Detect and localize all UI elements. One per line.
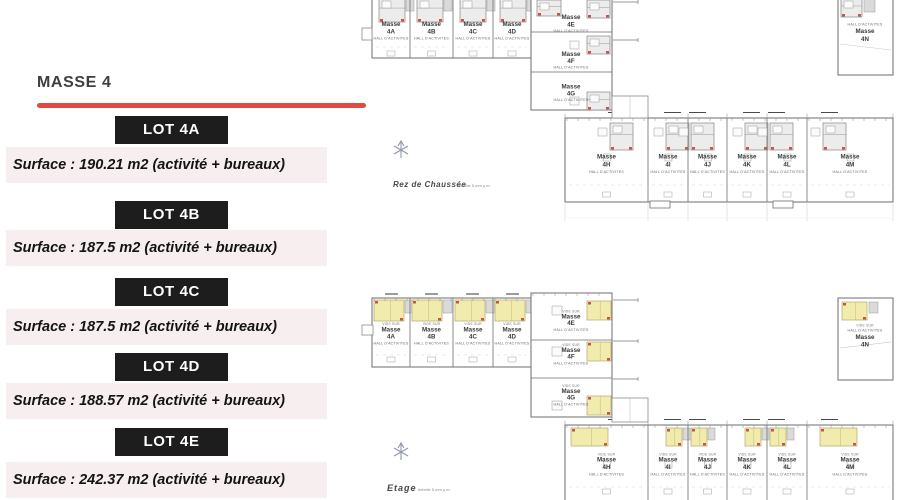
unit-hall-label: HALL D'ACTIVITES: [730, 473, 765, 477]
north-compass-icon: [394, 443, 408, 460]
masse4-sheet: MASSE 4 LOT 4ASurface : 190.21 m2 (activ…: [0, 0, 900, 500]
unit-hall-label: HALL D'ACTIVITES: [414, 342, 449, 346]
unit-number: 4F: [567, 354, 574, 361]
unit-hall-label: HALL D'ACTIVITES: [589, 473, 624, 477]
unit-hall-label: HALL D'ACTIVITES: [554, 403, 589, 407]
plan-label-rdc: Rez de Chaussée: [393, 180, 466, 189]
unit-hall-label: HALL D'ACTIVITES: [690, 170, 725, 174]
plan-label-etage: Etage: [387, 483, 417, 493]
unit-number: 4L: [783, 464, 790, 471]
unit-number: 4D: [508, 334, 516, 341]
unit-name: Masse: [856, 334, 875, 341]
unit-name: Masse: [422, 21, 441, 28]
unit-hall-label: HALL D'ACTIVITES: [495, 37, 530, 41]
unit-void-label: VIDE SUR: [464, 322, 482, 326]
unit-name: Masse: [698, 457, 717, 464]
unit-name: Masse: [464, 327, 483, 334]
floor-plan-etage: VIDE SURMasse4AHALL D'ACTIVITESVIDE SURM…: [362, 293, 893, 500]
floor-plan-rdc: Masse4AHALL D'ACTIVITESMasse4BHALL D'ACT…: [362, 0, 893, 221]
unit-number: 4M: [846, 162, 855, 169]
unit-number: 4C: [469, 29, 477, 36]
unit-hall-label: HALL D'ACTIVITES: [589, 170, 624, 174]
unit-number: 4G: [567, 395, 575, 402]
unit-name: Masse: [562, 84, 581, 91]
unit-hall-label: HALL D'ACTIVITES: [651, 170, 686, 174]
unit-name: Masse: [562, 51, 581, 58]
unit-name: Masse: [382, 327, 401, 334]
unit-number: 4E: [567, 320, 575, 327]
unit-hall-label: HALL D'ACTIVITES: [554, 66, 589, 70]
unit-hall-label: HALL D'ACTIVITES: [554, 29, 589, 33]
unit-name: Masse: [562, 14, 581, 21]
unit-hall-label: HALL D'ACTIVITES: [770, 170, 805, 174]
unit-hall-label: HALL D'ACTIVITES: [770, 473, 805, 477]
unit-number: 4L: [783, 162, 790, 169]
unit-number: 4H: [603, 464, 611, 471]
unit-name: Masse: [382, 21, 401, 28]
unit-name: Masse: [659, 154, 678, 161]
unit-name: Masse: [778, 154, 797, 161]
unit-number: 4A: [387, 29, 395, 36]
unit-void-label: VIDE SUR: [382, 322, 400, 326]
unit-void-label: VIDE SUR: [856, 324, 874, 328]
unit-hall-label: HALL D'ACTIVITES: [833, 170, 868, 174]
unit-number: 4N: [861, 36, 869, 43]
unit-number: 4I: [665, 464, 670, 471]
unit-void-label: VIDE SUR: [503, 322, 521, 326]
unit-number: 4E: [567, 22, 575, 29]
unit-hall-label: HALL D'ACTIVITES: [374, 37, 409, 41]
unit-number: 4I: [665, 162, 670, 169]
unit-hall-label: HALL D'ACTIVITES: [414, 37, 449, 41]
unit-hall-label: HALL D'ACTIVITES: [554, 98, 589, 102]
unit-hall-label: HALL D'ACTIVITES: [554, 328, 589, 332]
unit-name: Masse: [698, 154, 717, 161]
unit-name: Masse: [738, 154, 757, 161]
unit-hall-label: HALL D'ACTIVITES: [554, 362, 589, 366]
unit-number: 4N: [861, 342, 869, 349]
unit-hall-label: HALL D'ACTIVITES: [495, 342, 530, 346]
plan-scale-note-rdc: échelle 5 mm p.m.: [458, 183, 491, 188]
unit-hall-label: HALL D'ACTIVITES: [730, 170, 765, 174]
unit-name: Masse: [659, 457, 678, 464]
unit-number: 4B: [428, 334, 436, 341]
unit-name: Masse: [841, 457, 860, 464]
plan-scale-note-etage: échelle 5 mm p.m.: [418, 487, 451, 492]
unit-name: Masse: [841, 154, 860, 161]
unit-number: 4M: [846, 464, 855, 471]
unit-name: Masse: [597, 154, 616, 161]
unit-number: 4D: [508, 29, 516, 36]
unit-hall-label: HALL D'ACTIVITES: [456, 37, 491, 41]
unit-hall-label: HALL D'ACTIVITES: [374, 342, 409, 346]
unit-void-label: VIDE SUR: [423, 322, 441, 326]
unit-number: 4J: [704, 162, 711, 169]
north-compass-icon: [394, 141, 408, 158]
unit-name: Masse: [503, 327, 522, 334]
unit-number: 4G: [567, 91, 575, 98]
unit-number: 4J: [704, 464, 711, 471]
unit-hall-label: HALL D'ACTIVITES: [690, 473, 725, 477]
unit-hall-label: HALL D'ACTIVITES: [848, 23, 883, 27]
unit-hall-label: HALL D'ACTIVITES: [456, 342, 491, 346]
unit-name: Masse: [503, 21, 522, 28]
floor-plans-canvas: Masse4AHALL D'ACTIVITESMasse4BHALL D'ACT…: [0, 0, 900, 500]
unit-hall-label: HALL D'ACTIVITES: [833, 473, 868, 477]
unit-number: 4K: [743, 162, 751, 169]
unit-hall-label: HALL D'ACTIVITES: [651, 473, 686, 477]
unit-number: 4F: [567, 58, 574, 65]
unit-name: Masse: [856, 28, 875, 35]
unit-name: Masse: [738, 457, 757, 464]
unit-name: Masse: [422, 327, 441, 334]
unit-name: Masse: [597, 457, 616, 464]
unit-hall-label: HALL D'ACTIVITES: [848, 329, 883, 333]
unit-number: 4C: [469, 334, 477, 341]
unit-number: 4H: [603, 162, 611, 169]
unit-number: 4B: [428, 29, 436, 36]
unit-name: Masse: [778, 457, 797, 464]
unit-number: 4K: [743, 464, 751, 471]
unit-number: 4A: [387, 334, 395, 341]
unit-name: Masse: [464, 21, 483, 28]
